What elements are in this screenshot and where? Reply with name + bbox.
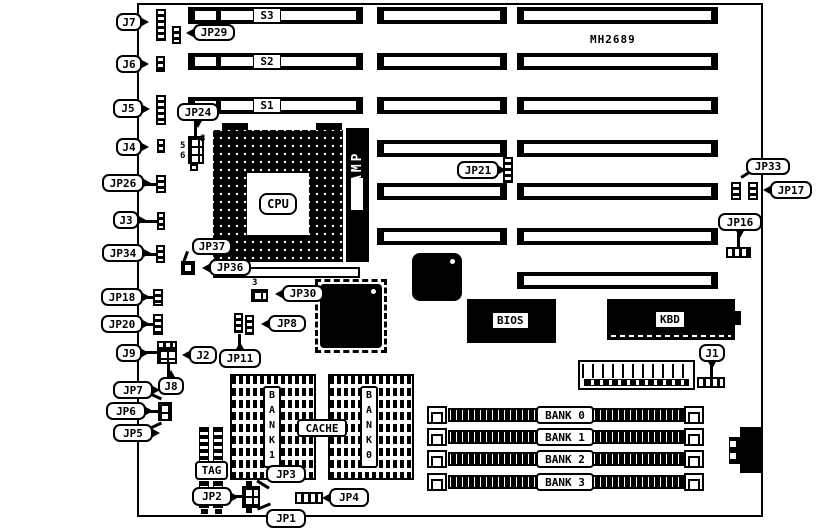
cpu-socket-center: CPU xyxy=(247,173,309,235)
slot-label-s3: S3 xyxy=(253,8,281,23)
callout-jp16: JP16 xyxy=(718,213,762,231)
j3-header xyxy=(157,212,165,230)
isa-slot xyxy=(517,272,718,289)
j5-header xyxy=(156,95,166,125)
tag-sram-socket xyxy=(199,427,209,464)
bank3-label: BANK 3 xyxy=(536,473,594,491)
isa-slot xyxy=(517,97,718,114)
jp24-jumper-tab xyxy=(190,164,198,171)
din-pin xyxy=(730,441,736,447)
callout-jp4: JP4 xyxy=(329,488,369,507)
callout-j9: J9 xyxy=(116,344,142,362)
isa-slot xyxy=(377,228,507,245)
callout-jp34: JP34 xyxy=(102,244,144,262)
bank1-label: BANK 1 xyxy=(536,428,594,446)
simm-clip xyxy=(684,473,704,491)
part-number: MH2689 xyxy=(590,33,636,46)
jp24-pin6-number: 6 xyxy=(180,151,185,161)
callout-jp30: JP30 xyxy=(282,285,324,302)
simm-clip xyxy=(684,428,704,446)
simm-clip xyxy=(427,450,447,468)
callout-jp24: JP24 xyxy=(177,103,219,121)
j7-header xyxy=(156,9,166,41)
j4-header xyxy=(157,139,165,153)
jp30-jumper xyxy=(251,289,268,302)
callout-j3: J3 xyxy=(113,211,139,229)
isa-slot xyxy=(517,7,718,24)
j1-header xyxy=(697,377,725,388)
callout-j2: J2 xyxy=(189,346,217,364)
cpu-label: CPU xyxy=(259,193,297,215)
callout-jp36: JP36 xyxy=(209,259,251,276)
callout-jp29: JP29 xyxy=(193,24,235,41)
bank0-label: BANK 0 xyxy=(536,406,594,424)
jp37-jp36-jumper-block xyxy=(181,261,195,275)
motherboard-layout-diagram: MH2689 S3 S2 S1 CPU AMP BIOS KBD xyxy=(0,0,816,532)
callout-j1: J1 xyxy=(699,344,725,362)
slot-label-s1: S1 xyxy=(253,98,281,113)
isa-slot xyxy=(377,53,507,70)
isa-slot xyxy=(517,53,718,70)
jp5-jp6-jp7-block xyxy=(158,402,172,421)
callout-jp7: JP7 xyxy=(113,381,153,399)
amp-connector: AMP xyxy=(346,128,369,262)
isa-slot xyxy=(377,7,507,24)
din-pin xyxy=(730,453,736,459)
bios-label: BIOS xyxy=(492,312,529,329)
bank2-label: BANK 2 xyxy=(536,450,594,468)
simm-clip xyxy=(684,450,704,468)
tag-socket-foot xyxy=(215,509,222,514)
dip-switch-block xyxy=(578,360,695,390)
jp11-header xyxy=(234,313,243,333)
jp30-pin3-number: 3 xyxy=(252,278,257,288)
callout-jp21: JP21 xyxy=(457,161,499,179)
simm-clip xyxy=(427,473,447,491)
callout-jp11: JP11 xyxy=(219,349,261,368)
jp24-pin5-number: 5 xyxy=(180,141,185,151)
tag-socket-foot xyxy=(201,509,208,514)
jp34-header xyxy=(156,245,165,263)
slot-label-s2: S2 xyxy=(253,54,281,69)
callout-jp1: JP1 xyxy=(266,509,306,528)
socket-tab xyxy=(316,123,342,130)
tag-sram-socket xyxy=(213,427,223,464)
socket-tab xyxy=(222,123,248,130)
jp1-jp2-jp3-block xyxy=(242,486,260,508)
j6-header xyxy=(156,56,165,72)
jp8-header xyxy=(245,315,254,335)
callout-jp8: JP8 xyxy=(268,315,306,332)
callout-jp6: JP6 xyxy=(106,402,146,420)
cache-bank1-label: B A N K 1 xyxy=(263,386,281,468)
jp17-header xyxy=(748,182,758,200)
callout-jp3: JP3 xyxy=(266,465,306,483)
tag-label: TAG xyxy=(195,461,228,480)
callout-jp17: JP17 xyxy=(770,181,812,199)
keyboard-controller-tab xyxy=(733,311,741,325)
jp16-header xyxy=(726,247,751,258)
isa-slot xyxy=(517,183,718,200)
isa-slot xyxy=(517,228,718,245)
chipset-qfp xyxy=(315,279,387,353)
callout-j4: J4 xyxy=(116,138,142,156)
simm-clip xyxy=(427,428,447,446)
callout-jp33: JP33 xyxy=(746,158,790,175)
jp29-header xyxy=(172,26,181,44)
jp24-pin3-number: 3 xyxy=(200,134,205,144)
isa-slot xyxy=(517,140,718,157)
callout-j6: J6 xyxy=(116,55,142,73)
isa-slot xyxy=(377,183,507,200)
callout-jp5: JP5 xyxy=(113,424,153,442)
controller-chip xyxy=(412,253,462,301)
jp2-block-tab xyxy=(246,508,252,513)
cache-label: CACHE xyxy=(297,419,347,437)
callout-j7: J7 xyxy=(116,13,142,31)
simm-clip xyxy=(684,406,704,424)
isa-slot xyxy=(377,140,507,157)
cpu-socket: CPU xyxy=(213,130,343,262)
jp33-header xyxy=(731,182,741,200)
jp26-header xyxy=(156,175,166,193)
callout-jp18: JP18 xyxy=(101,288,143,306)
amp-connector-notch xyxy=(351,178,363,210)
j9-j2-block xyxy=(157,348,177,364)
kbd-label: KBD xyxy=(655,311,685,328)
keyboard-din-connector xyxy=(740,427,763,473)
cache-bank0-label: B A N K 0 xyxy=(360,386,378,468)
callout-jp37: JP37 xyxy=(192,238,232,255)
callout-jp20: JP20 xyxy=(101,315,143,333)
isa-slot xyxy=(377,97,507,114)
callout-jp26: JP26 xyxy=(102,174,144,192)
simm-clip xyxy=(427,406,447,424)
callout-jp2: JP2 xyxy=(192,487,232,506)
callout-j5: J5 xyxy=(113,99,143,118)
